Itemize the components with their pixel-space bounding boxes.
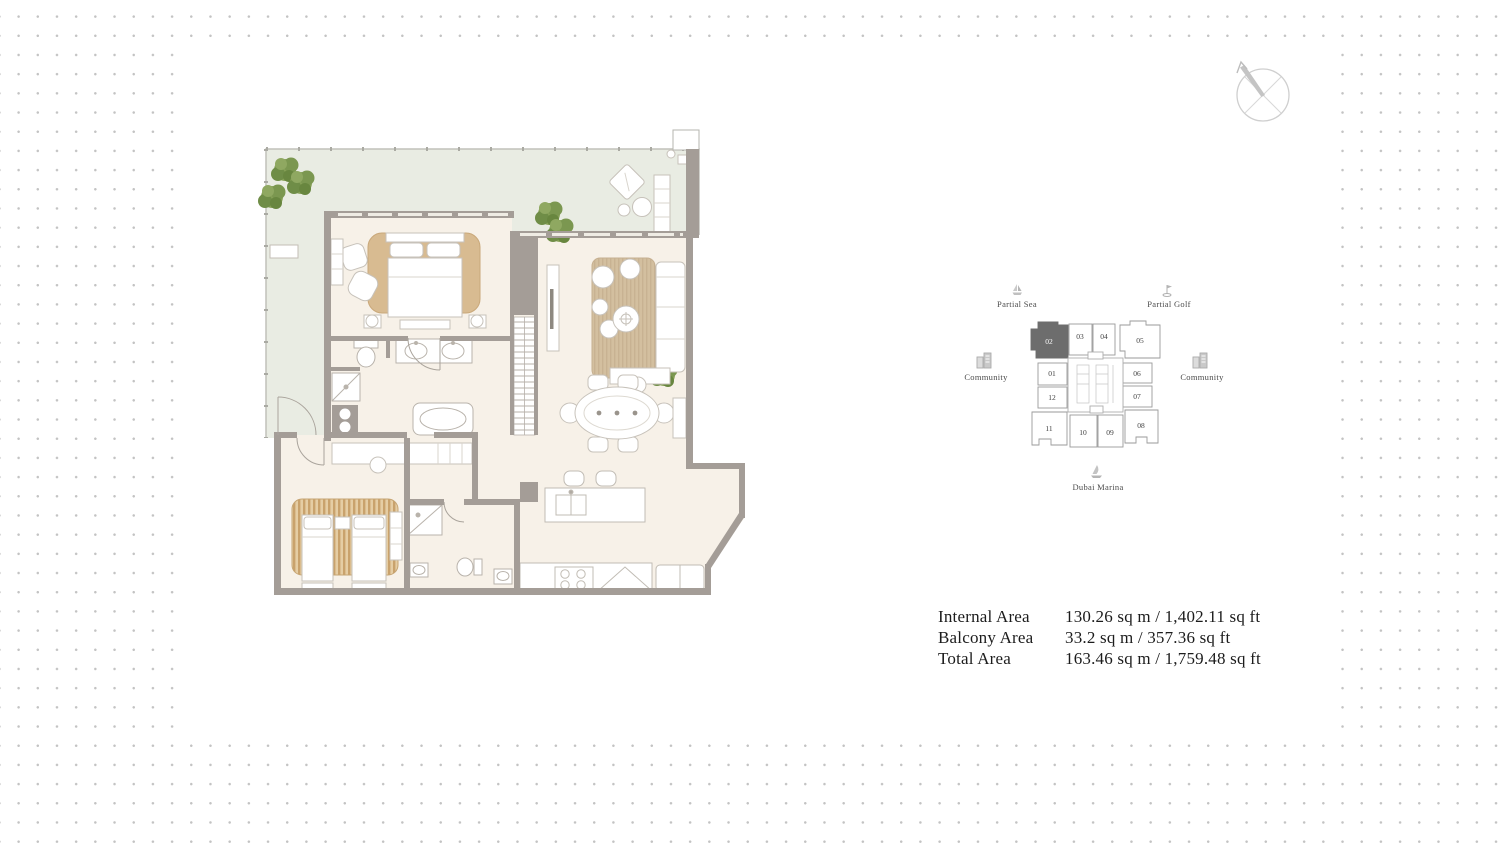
keyplan-unit-02: 02 xyxy=(1045,337,1053,346)
buildings-icon xyxy=(977,353,991,368)
area-label: Total Area xyxy=(938,648,1065,669)
area-value: 163.46 sq m / 1,759.48 sq ft xyxy=(1065,648,1261,669)
floor-plan xyxy=(258,127,748,609)
keyplan-unit-12: 12 xyxy=(1048,393,1056,402)
buildings-icon xyxy=(1193,353,1207,368)
area-table: Internal Area 130.26 sq m / 1,402.11 sq … xyxy=(938,606,1261,669)
keyplan-unit-11: 11 xyxy=(1045,424,1052,433)
label-community-left: Community xyxy=(964,372,1008,382)
washer-dryer xyxy=(332,405,358,435)
keyplan-unit-09: 09 xyxy=(1106,428,1114,437)
area-row-internal: Internal Area 130.26 sq m / 1,402.11 sq … xyxy=(938,606,1261,627)
keyplan-unit-07: 07 xyxy=(1133,392,1141,401)
label-partial-golf: Partial Golf xyxy=(1147,299,1191,309)
label-dubai-marina: Dubai Marina xyxy=(1072,482,1123,492)
key-plan: 02 03 04 05 01 12 06 07 11 10 09 08 xyxy=(950,273,1240,498)
area-label: Balcony Area xyxy=(938,627,1065,648)
area-value: 33.2 sq m / 357.36 sq ft xyxy=(1065,627,1230,648)
keyplan-unit-03: 03 xyxy=(1076,332,1084,341)
area-label: Internal Area xyxy=(938,606,1065,627)
sailboat-icon xyxy=(1013,284,1023,295)
keyplan-unit-04: 04 xyxy=(1100,332,1108,341)
label-community-right: Community xyxy=(1180,372,1224,382)
north-compass-icon xyxy=(1228,58,1298,128)
wardrobe xyxy=(514,317,535,435)
label-partial-sea: Partial Sea xyxy=(997,299,1037,309)
golf-flag-icon xyxy=(1163,285,1172,296)
keyplan-unit-10: 10 xyxy=(1079,428,1087,437)
boat-icon xyxy=(1091,465,1102,478)
keyplan-unit-08: 08 xyxy=(1137,421,1145,430)
area-row-balcony: Balcony Area 33.2 sq m / 357.36 sq ft xyxy=(938,627,1261,648)
area-value: 130.26 sq m / 1,402.11 sq ft xyxy=(1065,606,1260,627)
keyplan-unit-06: 06 xyxy=(1133,369,1141,378)
keyplan-unit-05: 05 xyxy=(1136,336,1144,345)
area-row-total: Total Area 163.46 sq m / 1,759.48 sq ft xyxy=(938,648,1261,669)
roof-protrusion xyxy=(673,130,699,150)
keyplan-unit-01: 01 xyxy=(1048,369,1056,378)
